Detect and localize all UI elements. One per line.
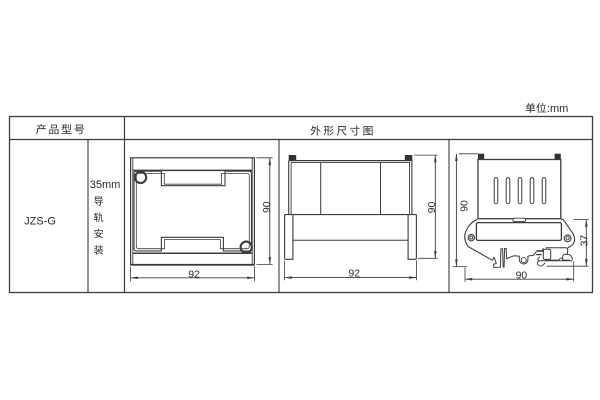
svg-text:90: 90 <box>516 271 528 282</box>
svg-text::mm: :mm <box>547 103 568 115</box>
svg-text:92: 92 <box>188 270 200 281</box>
svg-text:JZS-G: JZS-G <box>24 216 56 228</box>
svg-text:90: 90 <box>262 201 273 213</box>
svg-text:35mm: 35mm <box>90 179 121 191</box>
svg-text:37: 37 <box>579 235 590 247</box>
svg-text:90: 90 <box>460 200 471 212</box>
svg-text:92: 92 <box>349 269 361 280</box>
svg-text:90: 90 <box>427 202 438 214</box>
